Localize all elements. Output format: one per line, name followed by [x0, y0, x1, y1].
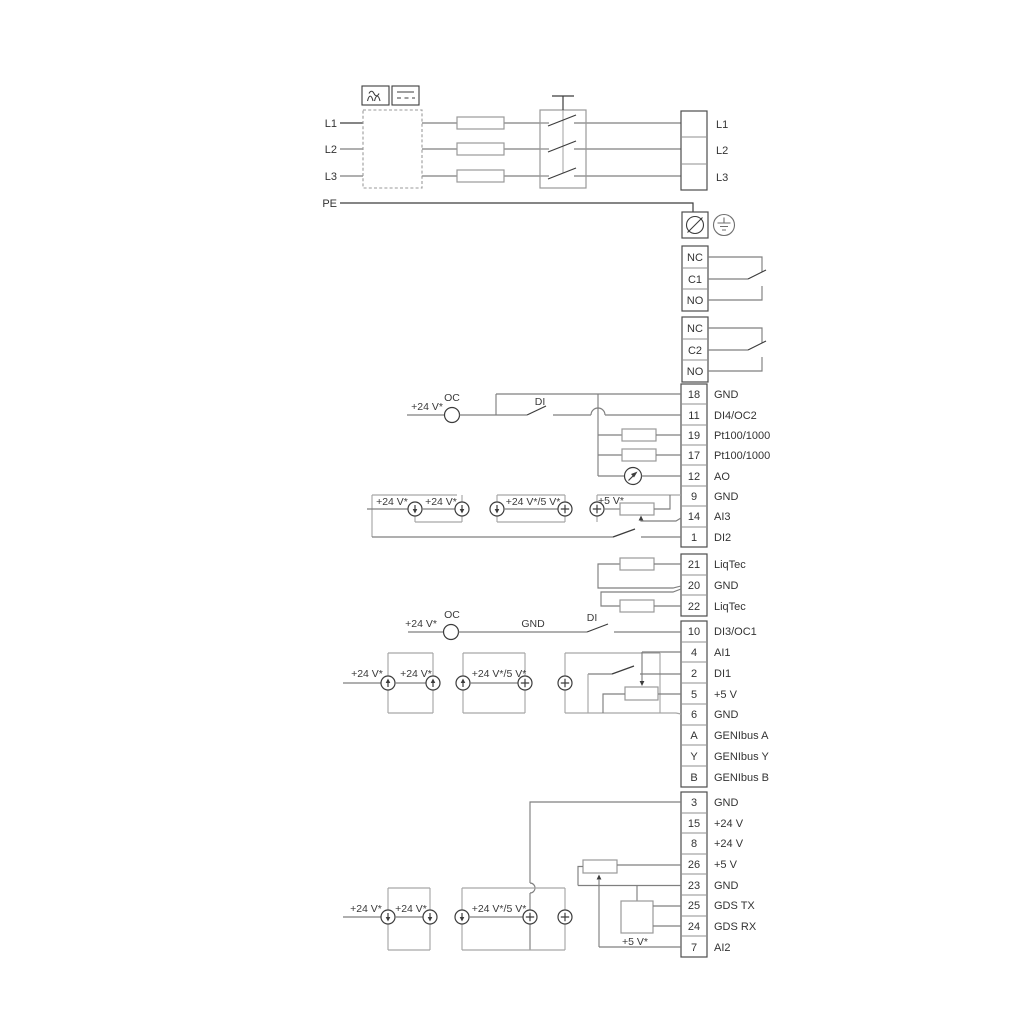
supply-label: +24 V*: [351, 668, 383, 680]
rectifier-dashed-box: [363, 110, 422, 188]
potentiometer-ai2: [583, 860, 617, 873]
earth-icon: [714, 215, 735, 236]
term-23: 23: [688, 880, 700, 892]
term-9-label: GND: [714, 491, 739, 503]
potentiometer-ai1: [625, 687, 658, 700]
term-6-label: GND: [714, 709, 739, 721]
relay1-contact: [748, 270, 766, 279]
pe-wire: [340, 203, 693, 212]
term-y-label: GENIbus Y: [714, 751, 769, 763]
gds-sensor-box: [621, 901, 653, 933]
mains-wires: [340, 123, 693, 212]
term-5: 5: [691, 689, 697, 701]
term-a: A: [690, 730, 698, 742]
term-17-label: Pt100/1000: [714, 450, 770, 462]
fuse-l1: [457, 117, 504, 129]
current-sink-icon: [455, 910, 469, 924]
mains-out-label-l3: L3: [716, 172, 728, 184]
di-label: DI: [535, 396, 546, 408]
term-11: 11: [688, 410, 699, 422]
term-22: 22: [688, 601, 700, 613]
current-sink-icon: [455, 502, 469, 516]
mains-in-label-pe: PE: [322, 198, 337, 210]
supply-label: +24 V*: [350, 903, 382, 915]
potentiometer-ai3: [620, 503, 654, 515]
di-switch: [587, 624, 608, 632]
main-switch: [540, 96, 586, 188]
relay1-nc: NC: [687, 252, 703, 264]
rectifier-unit: [362, 86, 422, 188]
supply-label: +24 V*/5 V*: [506, 496, 561, 508]
term-14-label: AI3: [714, 511, 731, 523]
liqtec-sensor-2: [620, 600, 654, 612]
relay1-no: NO: [687, 295, 704, 307]
term-25: 25: [688, 900, 700, 912]
term-8: 8: [691, 838, 697, 850]
supply-label: +24 V*: [405, 618, 437, 630]
voltage-source-icon: [518, 676, 532, 690]
term-2: 2: [691, 668, 697, 680]
term-15-label: +24 V: [714, 818, 744, 830]
voltage-source-icon: [558, 502, 572, 516]
term-3: 3: [691, 797, 697, 809]
ground-terminal: [682, 212, 735, 238]
gnd-label: GND: [521, 618, 545, 630]
term-a-label: GENIbus A: [714, 730, 769, 742]
term-18-label: GND: [714, 389, 739, 401]
fuse-l2: [457, 143, 504, 155]
term-4: 4: [691, 647, 697, 659]
mains-in-label-l2: L2: [325, 144, 337, 156]
io-strip-1-wiring: +24 V* OC DI +24 V* +24 V* +24 V*/5 V* +…: [367, 392, 681, 537]
term-21: 21: [688, 559, 700, 571]
term-15: 15: [688, 818, 700, 830]
term-b: B: [690, 772, 697, 784]
di-label: DI: [587, 612, 598, 624]
term-3-label: GND: [714, 797, 739, 809]
term-2-label: DI1: [714, 668, 731, 680]
supply-label: +24 V*: [425, 496, 457, 508]
term-8-label: +24 V: [714, 838, 744, 850]
term-26-label: +5 V: [714, 859, 738, 871]
current-sink-icon: [423, 910, 437, 924]
term-20-label: GND: [714, 580, 739, 592]
term-1-label: DI2: [714, 532, 731, 544]
term-6: 6: [691, 709, 697, 721]
term-10: 10: [688, 626, 700, 638]
open-collector-icon: [445, 408, 460, 423]
pt100-resistor-1: [622, 429, 656, 441]
fuse-l3: [457, 170, 504, 182]
supply-label: +24 V*/5 V*: [472, 668, 527, 680]
wiring-diagram-page: { "mains": { "in": ["L1", "L2", "L3", "P…: [0, 0, 1024, 1024]
liqtec-sensor-1: [620, 558, 654, 570]
mains-section: L1 L2 L3 PE: [322, 86, 734, 238]
term-24-label: GDS RX: [714, 921, 757, 933]
term-17: 17: [688, 450, 700, 462]
term-1: 1: [691, 532, 697, 544]
mains-in-label-l1: L1: [325, 118, 337, 130]
current-sink-icon: [408, 502, 422, 516]
term-22-label: LiqTec: [714, 601, 746, 613]
term-9: 9: [691, 491, 697, 503]
relay2-nc: NC: [687, 323, 703, 335]
supply-label: +5 V*: [622, 936, 648, 948]
relay-block-1: NC C1 NO: [682, 246, 766, 311]
io-strip-3: 3GND 15+24 V 8+24 V 26+5 V 23GND 25GDS T…: [681, 792, 757, 957]
io-strip-1: 18GND 11DI4/OC2 19Pt100/1000 17Pt100/100…: [681, 384, 770, 547]
current-source-icon: [426, 676, 440, 690]
current-sink-icon: [381, 910, 395, 924]
supply-label: +24 V*: [411, 401, 443, 413]
relay-block-2: NC C2 NO: [682, 317, 766, 382]
current-source-icon: [456, 676, 470, 690]
term-23-label: GND: [714, 880, 739, 892]
di2-switch: [613, 529, 635, 537]
di1-switch: [612, 666, 634, 674]
relay2-c2: C2: [688, 345, 702, 357]
term-7-label: AI2: [714, 942, 731, 954]
term-5-label: +5 V: [714, 689, 738, 701]
term-y: Y: [690, 751, 698, 763]
relay2-contact: [748, 341, 766, 350]
supply-label: +24 V*: [376, 496, 408, 508]
dc-symbol-icon: [392, 86, 419, 105]
term-25-label: GDS TX: [714, 900, 755, 912]
io-strip-2-wiring: +24 V* OC GND DI +24 V* +24 V* +24 V*/5 …: [343, 609, 681, 714]
term-b-label: GENIbus B: [714, 772, 769, 784]
schematic-canvas: L1 L2 L3 PE: [0, 0, 1024, 1024]
liqtec-strip: 21LiqTec 20GND 22LiqTec: [598, 554, 746, 616]
mains-in-label-l3: L3: [325, 171, 337, 183]
voltage-source-icon: [558, 676, 572, 690]
oc-label: OC: [444, 609, 460, 621]
term-4-label: AI1: [714, 647, 731, 659]
mains-out-label-l2: L2: [716, 145, 728, 157]
term-14: 14: [688, 511, 700, 523]
term-26: 26: [688, 859, 700, 871]
term-11-label: DI4/OC2: [714, 410, 757, 422]
term-19: 19: [688, 430, 700, 442]
term-18: 18: [688, 389, 700, 401]
voltage-source-icon: [558, 910, 572, 924]
io-strip-3-wiring: +24 V* +24 V* +24 V*/5 V*: [343, 802, 681, 950]
current-sink-icon: [490, 502, 504, 516]
relay1-c1: C1: [688, 274, 702, 286]
term-12: 12: [688, 471, 700, 483]
term-10-label: DI3/OC1: [714, 626, 757, 638]
term-24: 24: [688, 921, 700, 933]
voltage-source-icon: [523, 910, 537, 924]
term-21-label: LiqTec: [714, 559, 746, 571]
term-20: 20: [688, 580, 700, 592]
current-source-icon: [381, 676, 395, 690]
supply-label: +24 V*/5 V*: [472, 903, 527, 915]
term-19-label: Pt100/1000: [714, 430, 770, 442]
voltage-source-icon: [590, 502, 604, 516]
term-7: 7: [691, 942, 697, 954]
open-collector-icon: [444, 625, 459, 640]
mains-out-label-l1: L1: [716, 119, 728, 131]
relay2-no: NO: [687, 366, 704, 378]
supply-label: +24 V*: [395, 903, 427, 915]
mains-terminal-block: L1 L2 L3: [681, 111, 728, 190]
fuses: [457, 117, 504, 182]
term-12-label: AO: [714, 471, 730, 483]
io-strip-2: 10DI3/OC1 4AI1 2DI1 5+5 V 6GND AGENIbus …: [681, 621, 769, 787]
pt100-resistor-2: [622, 449, 656, 461]
oc-label: OC: [444, 392, 460, 404]
